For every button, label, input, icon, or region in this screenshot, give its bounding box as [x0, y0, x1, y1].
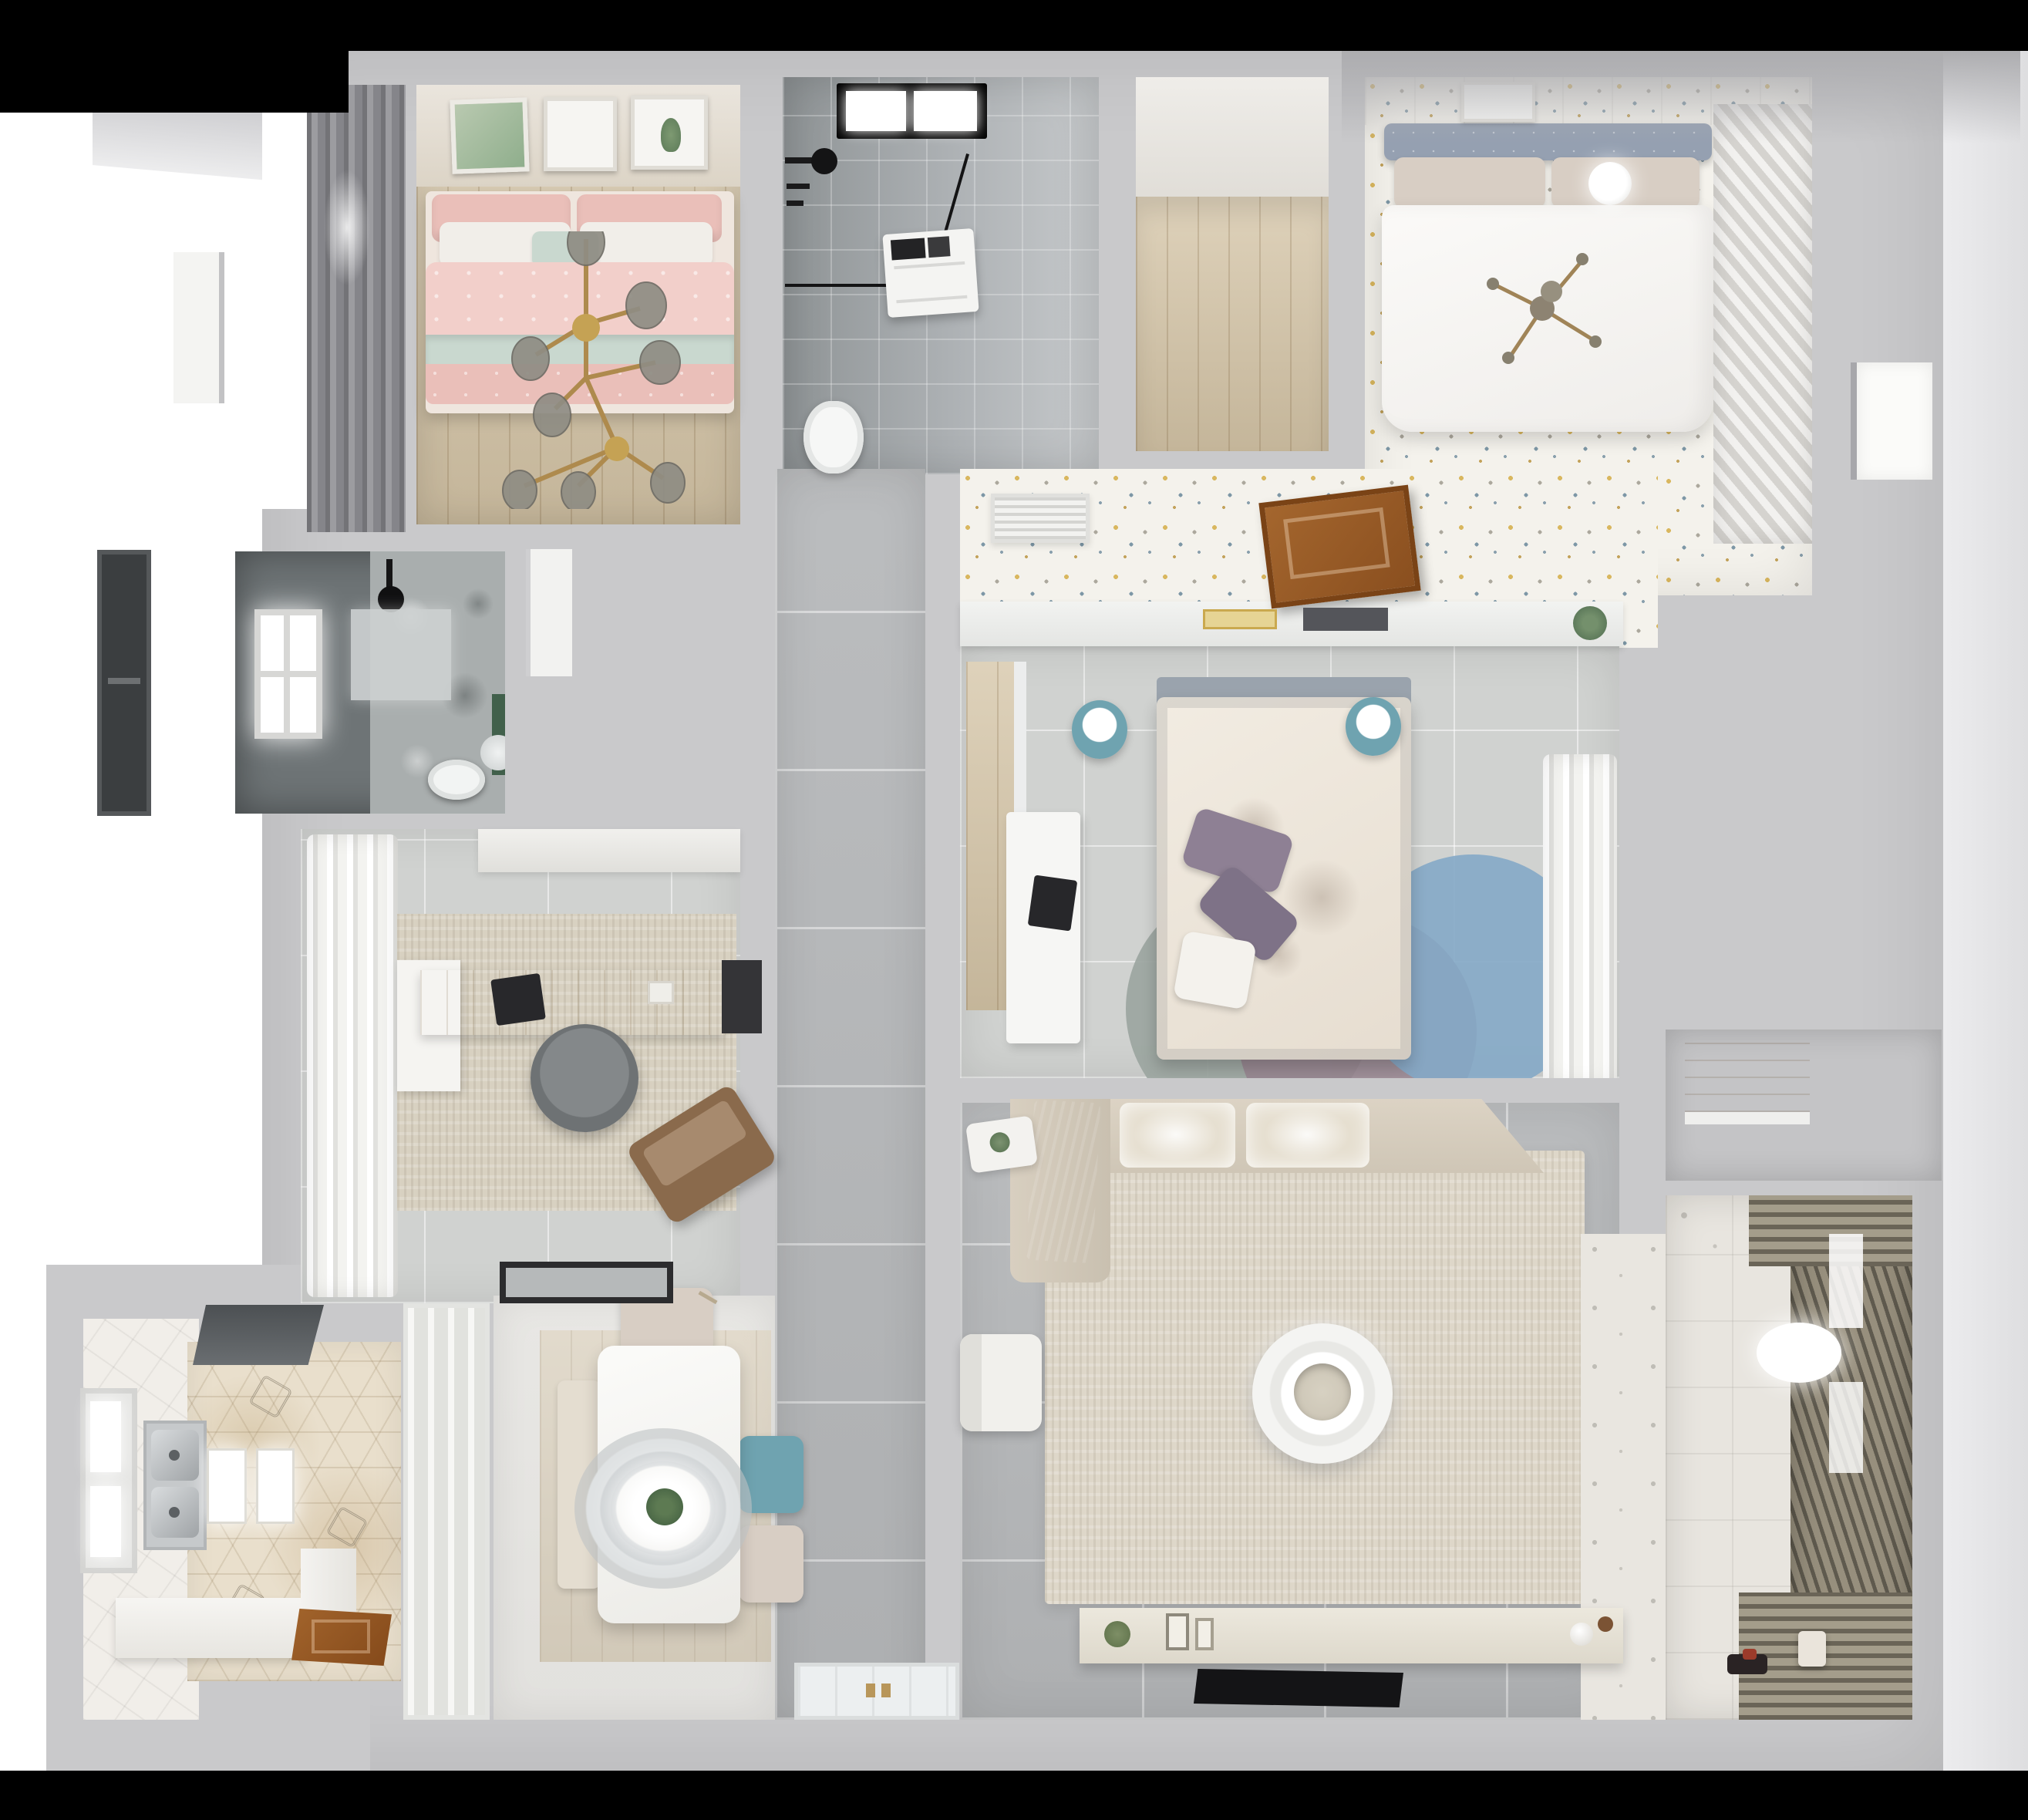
cushion-light [1134, 1107, 1218, 1161]
balcony-floor [1666, 1195, 1912, 1720]
bathroom-window [254, 609, 322, 739]
gray-throw-blanket [1026, 1100, 1101, 1263]
round-pendant-lamp [1588, 162, 1632, 205]
branch-chandelier [463, 231, 725, 509]
rack-light-slit [1829, 1382, 1863, 1473]
laptop [1028, 875, 1078, 931]
open-kitchen-door [291, 1609, 392, 1666]
glowing-counter [207, 1448, 247, 1524]
photo-frame [1166, 1613, 1189, 1650]
exterior-right-gradient [1943, 51, 2028, 1771]
artwork-script [544, 97, 617, 171]
dark-bathroom [235, 551, 505, 814]
range-hood [193, 1305, 324, 1365]
balcony-pendant-lamp [1757, 1323, 1841, 1383]
laptop [490, 973, 546, 1026]
beige-pillow [1394, 157, 1545, 208]
entry-door [794, 1663, 959, 1720]
door-handle [881, 1684, 891, 1697]
coffee-table-center [1294, 1363, 1351, 1421]
shower-head [378, 586, 404, 612]
exterior-door-panel [173, 252, 224, 403]
pink-bedroom-blind [307, 85, 406, 532]
center-bedroom-floor [960, 646, 1619, 1078]
sink-bowl [151, 1430, 199, 1481]
half-wall-shelf [960, 602, 1623, 646]
shower-valve [787, 201, 803, 206]
cross-branch-chandelier [1465, 231, 1619, 386]
shower-valve [787, 184, 810, 189]
tv-console [1080, 1608, 1623, 1663]
door-handle [866, 1684, 875, 1697]
closet-shelf [1685, 1112, 1810, 1124]
wood-nook-wall [1136, 77, 1329, 201]
wood-nook-floor [1136, 197, 1329, 451]
book [1303, 608, 1388, 631]
shower-pipe [386, 559, 392, 590]
rack-light-slit [1829, 1234, 1863, 1328]
louvered-wardrobe [1713, 104, 1812, 544]
shower-head [811, 148, 837, 174]
top-wall-shadow [1342, 51, 2020, 143]
frosted-sliding-door [403, 1303, 490, 1720]
side-table [965, 1115, 1038, 1173]
glowing-counter [256, 1448, 295, 1524]
exterior-notch [262, 113, 307, 509]
white-armchair [960, 1334, 1042, 1431]
decor-cup [1598, 1616, 1613, 1632]
tv-screen [1194, 1669, 1403, 1707]
right-door-opening [1851, 362, 1932, 480]
dark-shelf [722, 960, 762, 1033]
dining-chair-beige [739, 1525, 803, 1603]
office-chair [531, 1024, 638, 1132]
teal-stool [1072, 700, 1127, 759]
closet-wood-panel [1685, 1035, 1810, 1112]
floor-toy [1743, 1649, 1757, 1660]
open-wood-door [1258, 485, 1420, 609]
door-mat [500, 1262, 673, 1303]
bathroom-door-panel [526, 549, 572, 676]
floorplan-render [0, 0, 2028, 1820]
kitchen-window [80, 1388, 137, 1573]
vent-grille [991, 494, 1090, 543]
washing-machine [882, 228, 979, 318]
shelf-plant [1573, 606, 1607, 640]
pink-bedroom-window-glow [324, 170, 370, 285]
decor-ball [1570, 1623, 1593, 1646]
book [1203, 609, 1277, 629]
shower-tray [351, 609, 451, 700]
study-cabinet [478, 829, 740, 872]
study-curtains [307, 834, 398, 1297]
teal-stool [1346, 697, 1401, 756]
toilet [803, 401, 864, 474]
table-plant [646, 1488, 683, 1525]
bottom-black-bar [0, 1771, 2028, 1820]
cushion-light [1265, 1107, 1349, 1161]
top-left-black-block [0, 0, 349, 113]
sheer-curtain [1543, 754, 1617, 1078]
photo-frame [1195, 1618, 1214, 1650]
artwork-plant [631, 96, 708, 170]
desk-paper [648, 981, 674, 1004]
green-vase [1104, 1621, 1130, 1647]
small-stool [1798, 1631, 1826, 1667]
white-pillow [1173, 930, 1257, 1009]
kitchen-counter [116, 1598, 307, 1658]
exterior-window-dark [97, 550, 151, 816]
skylight-frame [837, 83, 987, 139]
toilet [428, 760, 485, 800]
artwork-botanical [450, 97, 529, 174]
sink-bowl [151, 1487, 199, 1538]
